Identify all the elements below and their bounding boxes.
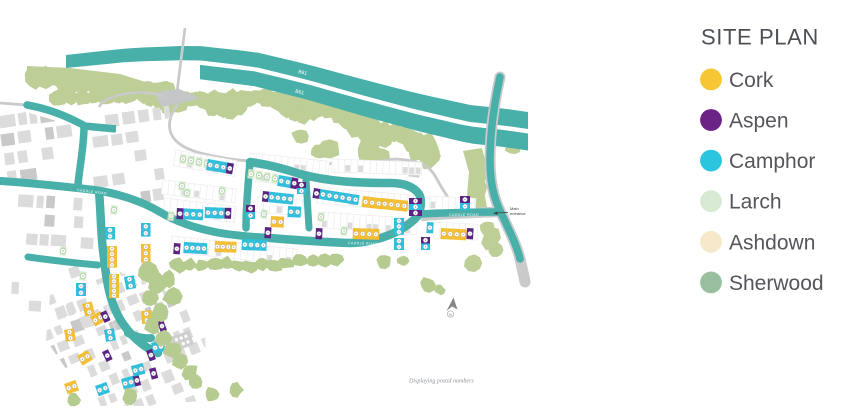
- svg-text:CADDLE ROAD: CADDLE ROAD: [449, 213, 479, 217]
- svg-text:Sherwood: Sherwood: [729, 272, 824, 295]
- svg-text:Larch: Larch: [729, 191, 782, 214]
- svg-text:entrance: entrance: [510, 211, 526, 216]
- svg-text:N: N: [449, 312, 452, 317]
- svg-text:Ashdown: Ashdown: [729, 231, 815, 254]
- svg-text:Camphor: Camphor: [729, 150, 815, 173]
- svg-text:Cork: Cork: [729, 69, 774, 92]
- svg-text:Displaying postal numbers: Displaying postal numbers: [408, 379, 474, 385]
- svg-text:Aspen: Aspen: [729, 110, 789, 133]
- svg-text:SITE PLAN: SITE PLAN: [701, 25, 819, 50]
